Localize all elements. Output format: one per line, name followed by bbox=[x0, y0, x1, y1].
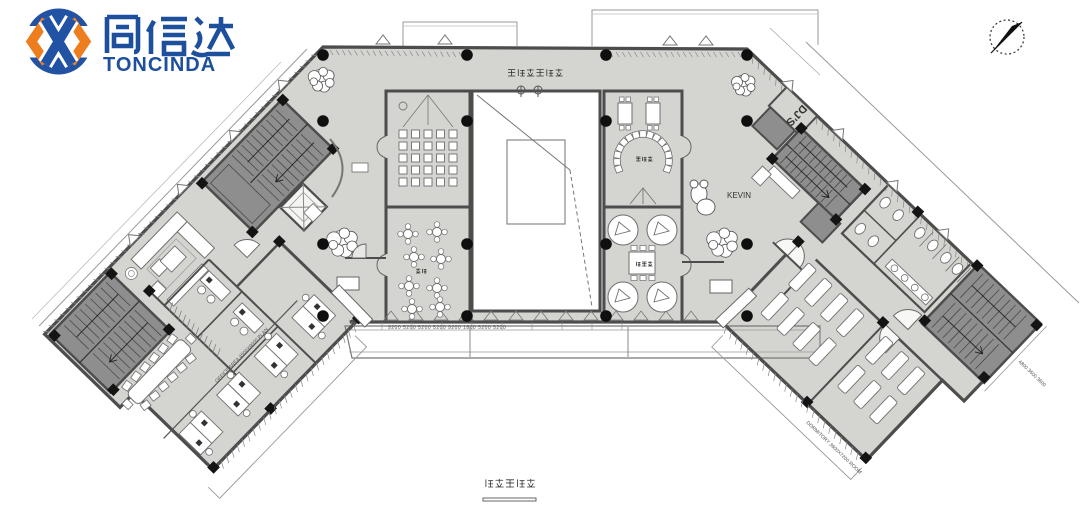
svg-text:TONCINDA: TONCINDA bbox=[103, 54, 216, 76]
svg-text:KEVIN: KEVIN bbox=[727, 191, 751, 200]
svg-text:9200 5200 5200 5200 9200 180: 9200 5200 5200 5200 9200 1800 5200 5200 bbox=[388, 325, 506, 331]
